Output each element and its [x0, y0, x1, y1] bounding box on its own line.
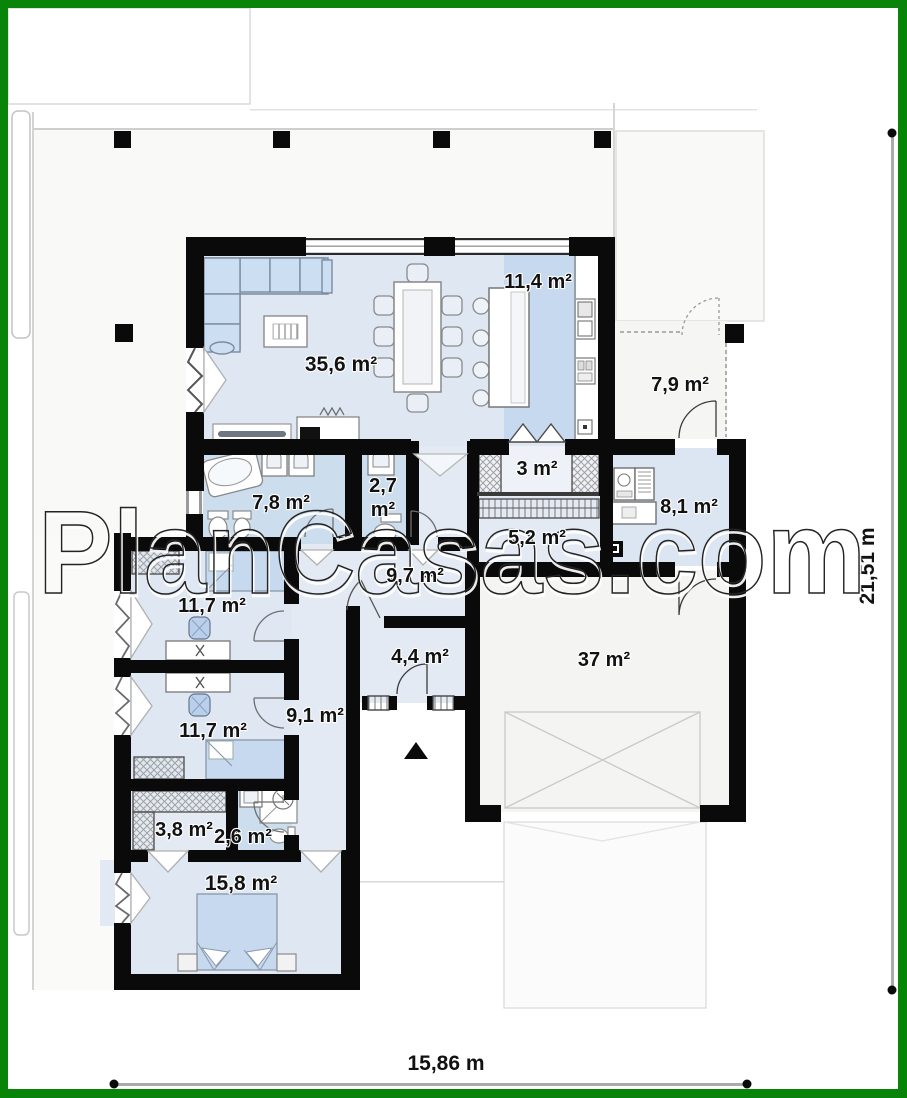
svg-text:5,2 m²: 5,2 m² — [508, 527, 566, 549]
svg-text:11,7 m²: 11,7 m² — [179, 720, 247, 742]
svg-text:37 m²: 37 m² — [578, 649, 631, 671]
svg-text:2,7: 2,7 — [369, 475, 397, 497]
svg-text:35,6 m²: 35,6 m² — [305, 353, 377, 376]
svg-text:7,9 m²: 7,9 m² — [651, 374, 709, 396]
svg-text:PlanCasas.com: PlanCasas.com — [38, 487, 866, 619]
svg-text:4,4 m²: 4,4 m² — [391, 646, 449, 668]
svg-text:8,1 m²: 8,1 m² — [660, 496, 718, 518]
svg-text:9,7 m²: 9,7 m² — [386, 565, 444, 587]
svg-text:2,6 m²: 2,6 m² — [214, 826, 272, 848]
svg-text:3,8 m²: 3,8 m² — [155, 819, 213, 841]
svg-text:7,8 m²: 7,8 m² — [252, 492, 310, 514]
svg-text:m²: m² — [371, 499, 396, 521]
svg-text:11,4 m²: 11,4 m² — [504, 271, 572, 293]
svg-text:15,86 m: 15,86 m — [407, 1052, 484, 1075]
svg-text:11,7 m²: 11,7 m² — [178, 595, 246, 617]
svg-text:9,1 m²: 9,1 m² — [286, 705, 344, 727]
svg-text:15,8 m²: 15,8 m² — [205, 872, 277, 895]
svg-text:3 m²: 3 m² — [516, 458, 557, 480]
